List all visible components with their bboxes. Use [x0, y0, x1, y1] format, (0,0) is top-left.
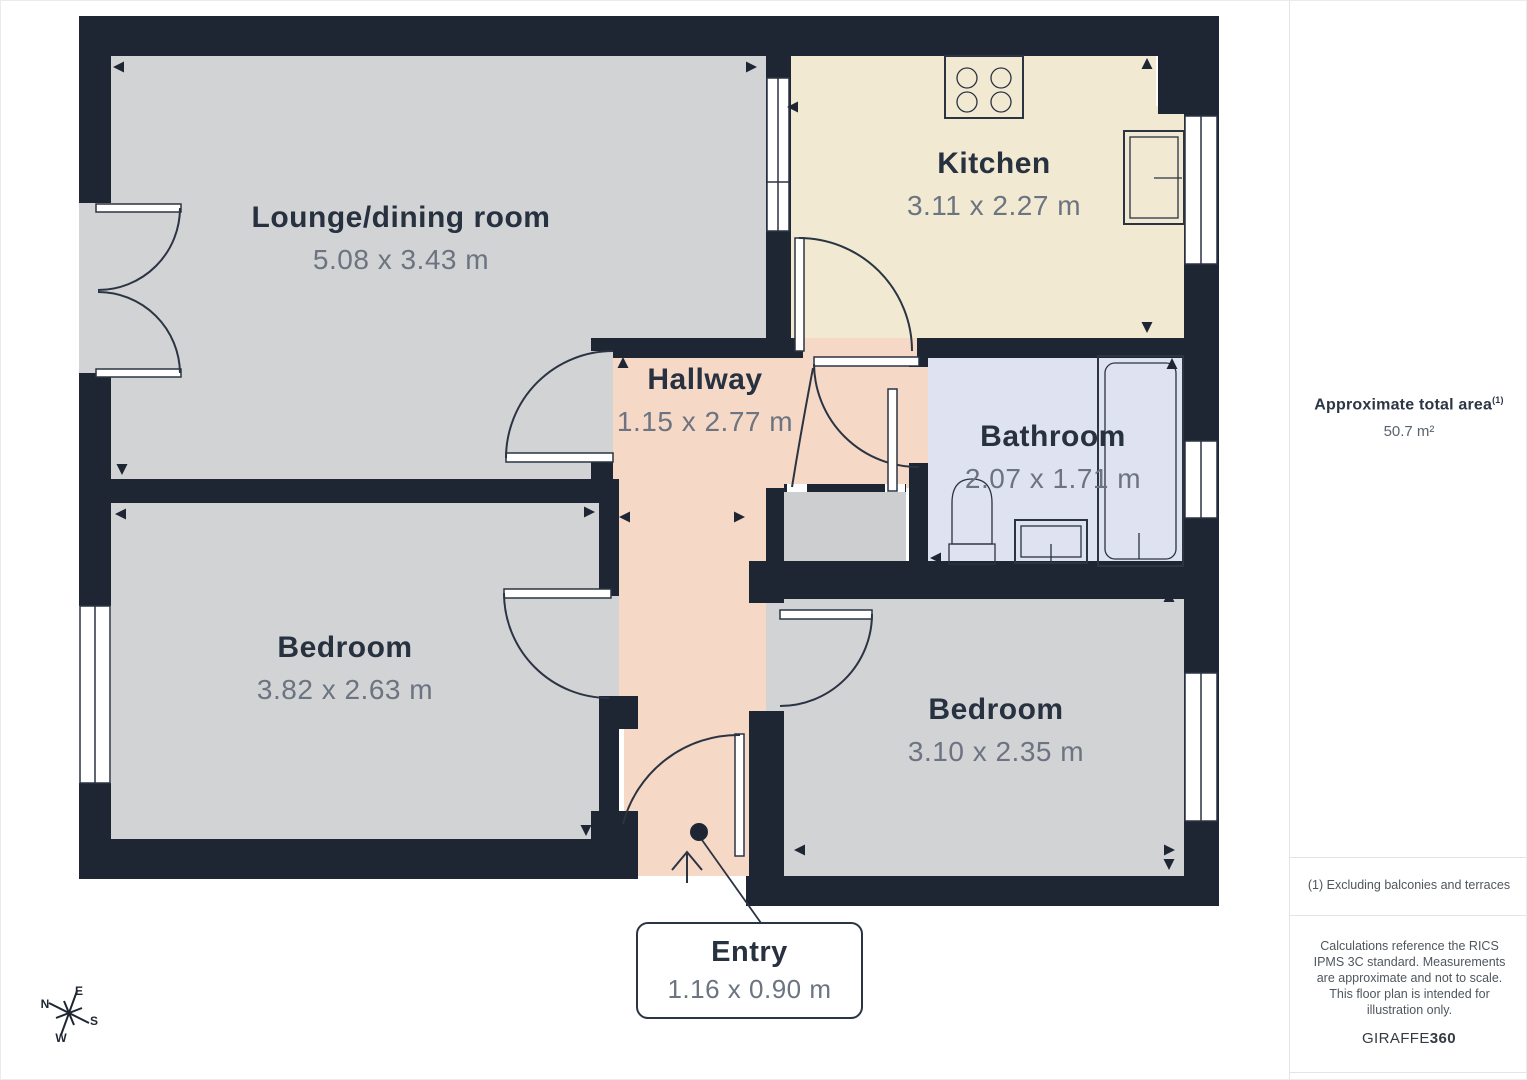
- kitchen-dims: 3.11 x 2.27 m: [907, 190, 1081, 221]
- entry-callout: Entry 1.16 x 0.90 m: [636, 922, 863, 1019]
- floorplan-page: N E S W Lounge/dining room 5.08 x 3.43 m…: [0, 0, 1527, 1080]
- entry-dot: [690, 823, 708, 841]
- hallway-label: Hallway: [647, 363, 762, 396]
- lounge-kitchen-window: [767, 78, 789, 231]
- bathroom-window: [1185, 441, 1217, 518]
- closet-floor: [784, 488, 906, 561]
- kitchen-window: [1185, 116, 1217, 264]
- compass-s: S: [90, 1014, 98, 1028]
- bedroom2-dims: 3.10 x 2.35 m: [908, 736, 1084, 767]
- sidebar-disclaimer: Calculations reference the RICS IPMS 3C …: [1310, 938, 1509, 1018]
- sidebar-footnote: (1) Excluding balconies and terraces: [1290, 878, 1527, 892]
- bedroom1-label: Bedroom: [277, 631, 412, 664]
- lounge-dims: 5.08 x 3.43 m: [313, 244, 489, 275]
- entry-callout-dims: 1.16 x 0.90 m: [667, 974, 831, 1005]
- bedroom1-dims: 3.82 x 2.63 m: [257, 674, 433, 705]
- sidebar-divider-3: [1290, 1072, 1527, 1073]
- hallway-dims: 1.15 x 2.77 m: [617, 406, 793, 437]
- brand-logo: GIRAFFE360: [1290, 1030, 1527, 1047]
- bedroom2-label: Bedroom: [928, 693, 1063, 726]
- total-area-title: Approximate total area(1): [1290, 395, 1527, 414]
- total-area-block: Approximate total area(1) 50.7 m²: [1290, 395, 1527, 440]
- compass-w: W: [55, 1031, 67, 1045]
- compass-e: E: [75, 984, 83, 998]
- entry-callout-title: Entry: [711, 936, 788, 969]
- bathroom-dims: 2.07 x 1.71 m: [965, 463, 1141, 494]
- brand-number: 360: [1430, 1030, 1456, 1047]
- lounge-frenchdoor-strip: [79, 203, 111, 373]
- bedroom2-window: [1185, 673, 1217, 821]
- compass-n: N: [41, 997, 50, 1011]
- lounge-label: Lounge/dining room: [252, 201, 551, 234]
- total-area-footnote-marker: (1): [1492, 395, 1504, 405]
- bathroom-label: Bathroom: [980, 420, 1126, 453]
- bedroom1-window: [80, 606, 110, 783]
- brand-name: GIRAFFE: [1362, 1030, 1430, 1047]
- kitchen-label: Kitchen: [937, 147, 1051, 180]
- info-sidebar: Approximate total area(1) 50.7 m² (1) Ex…: [1289, 1, 1527, 1080]
- sidebar-divider-2: [1290, 915, 1527, 916]
- bedroom1-floor: [111, 503, 599, 839]
- total-area-title-text: Approximate total area: [1314, 396, 1492, 413]
- compass-rose: N E S W: [41, 984, 98, 1045]
- total-area-value: 50.7 m²: [1290, 423, 1527, 440]
- sidebar-divider-1: [1290, 857, 1527, 858]
- bathroom-floor: [928, 358, 1184, 561]
